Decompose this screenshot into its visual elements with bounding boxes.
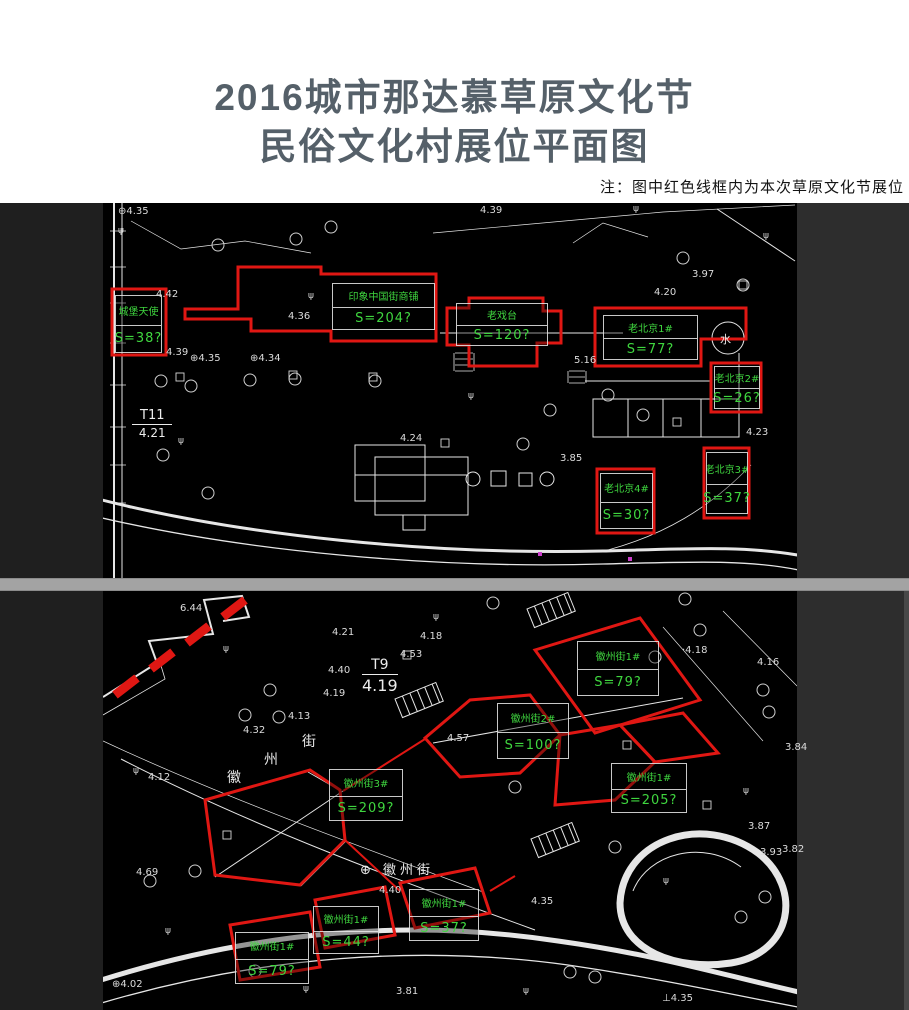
title-line-2: 民俗文化村展位平面图: [0, 123, 909, 172]
cad-canvas-lower: ψψψ ψψψ ψψ: [103, 591, 797, 1010]
cad-linework-lower: ψψψ ψψψ ψψ: [103, 591, 797, 1010]
grass-symbols: ψψψ ψψψ ψ: [118, 204, 797, 446]
white-linework: [103, 203, 797, 578]
svg-text:ψ: ψ: [308, 291, 314, 301]
cad-canvas-upper: ψψψ ψψψ ψ: [103, 203, 797, 578]
site-plan-upper: ψψψ ψψψ ψ T11: [0, 203, 909, 578]
grass-symbols: ψψψ ψψψ ψψ: [133, 612, 749, 996]
svg-text:ψ: ψ: [133, 766, 139, 776]
svg-text:ψ: ψ: [118, 226, 124, 236]
scan-margin: [797, 591, 909, 1010]
svg-text:ψ: ψ: [178, 436, 184, 446]
scan-edge: [904, 591, 909, 1010]
svg-text:ψ: ψ: [663, 876, 669, 886]
cad-linework-upper: ψψψ ψψψ ψ: [103, 203, 797, 578]
poster-page: 2016城市那达慕草原文化节 民俗文化村展位平面图 注：图中红色线框内为本次草原…: [0, 0, 909, 1010]
booth-outlines-red: [112, 267, 761, 533]
svg-text:ψ: ψ: [743, 786, 749, 796]
survey-squares: [176, 281, 747, 447]
panel-divider: [0, 578, 909, 591]
title-line-1: 2016城市那达慕草原文化节: [0, 74, 909, 123]
svg-text:ψ: ψ: [468, 391, 474, 401]
svg-text:ψ: ψ: [763, 231, 769, 241]
svg-text:ψ: ψ: [165, 926, 171, 936]
svg-text:ψ: ψ: [523, 986, 529, 996]
svg-text:ψ: ψ: [223, 644, 229, 654]
legend-note: 注：图中红色线框内为本次草原文化节展位: [600, 176, 904, 197]
scan-margin: [797, 203, 909, 578]
page-title: 2016城市那达慕草原文化节 民俗文化村展位平面图: [0, 74, 909, 172]
site-plan-lower: ψψψ ψψψ ψψ: [0, 591, 909, 1010]
svg-text:ψ: ψ: [633, 204, 639, 214]
white-linework: [103, 596, 797, 1008]
booth-outlines-red: [205, 618, 718, 980]
svg-text:ψ: ψ: [303, 984, 309, 994]
svg-text:ψ: ψ: [433, 612, 439, 622]
utility-marks: [538, 552, 632, 561]
